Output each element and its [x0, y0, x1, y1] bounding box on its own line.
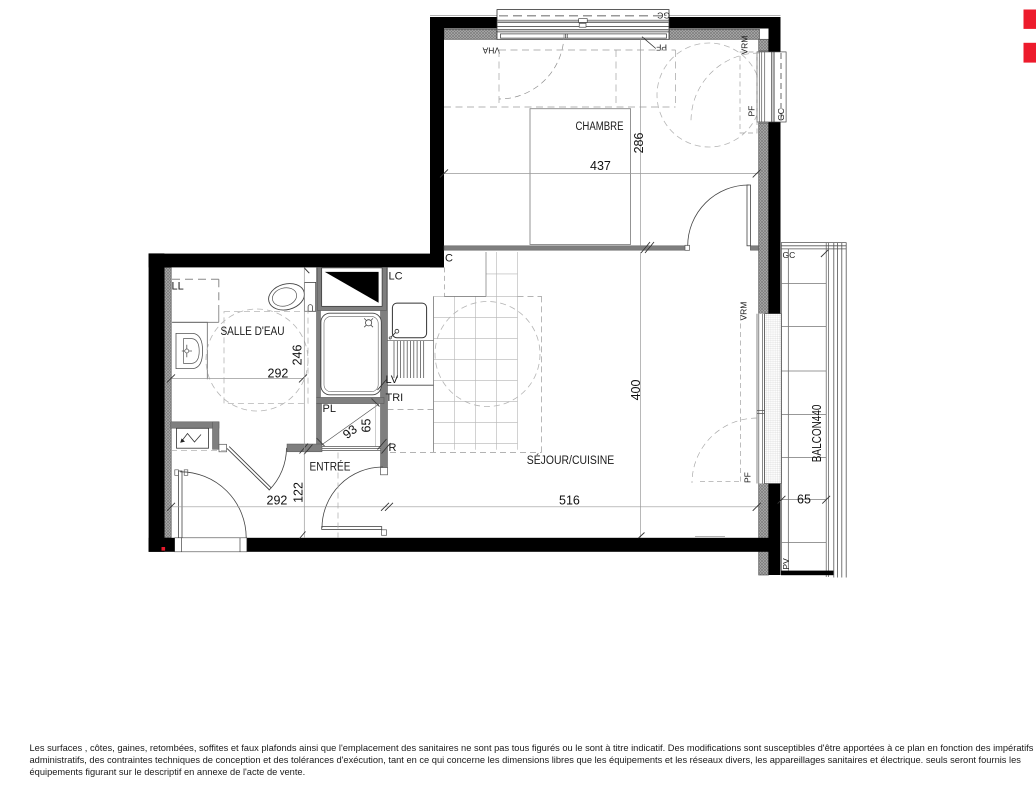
svg-text:PF: PF	[656, 43, 667, 53]
svg-text:SÉJOUR/CUISINE: SÉJOUR/CUISINE	[527, 453, 615, 467]
svg-text:65: 65	[360, 419, 374, 433]
svg-text:SALLE D'EAU: SALLE D'EAU	[220, 325, 284, 338]
svg-text:administratifs, des contrainte: administratifs, des contraintes techniqu…	[30, 755, 1022, 765]
svg-text:437: 437	[590, 159, 611, 173]
svg-text:292: 292	[267, 494, 288, 508]
svg-text:65: 65	[797, 493, 811, 507]
svg-text:LC: LC	[389, 271, 403, 283]
svg-text:PF: PF	[743, 472, 753, 483]
svg-text:LV: LV	[386, 374, 399, 386]
svg-text:122: 122	[292, 482, 306, 503]
svg-text:VHA: VHA	[482, 46, 500, 56]
svg-text:516: 516	[559, 493, 580, 507]
svg-text:équipements figurant sur le de: équipements figurant sur le descriptif e…	[30, 767, 306, 777]
svg-text:GC: GC	[783, 250, 796, 260]
svg-text:C: C	[445, 253, 453, 265]
svg-text:VRM: VRM	[740, 36, 750, 55]
svg-text:286: 286	[632, 133, 646, 154]
svg-text:ENTRÉE: ENTRÉE	[310, 460, 351, 474]
svg-text:PL: PL	[323, 403, 336, 415]
svg-text:GC: GC	[657, 11, 670, 21]
svg-text:TRI: TRI	[386, 392, 404, 404]
svg-text:LL: LL	[172, 281, 184, 293]
svg-text:BALCON440: BALCON440	[811, 405, 824, 463]
svg-text:VRM: VRM	[739, 302, 749, 321]
svg-text:GC: GC	[776, 108, 786, 121]
svg-text:PV: PV	[781, 558, 791, 570]
svg-text:292: 292	[268, 366, 289, 380]
svg-text:CHAMBRE: CHAMBRE	[576, 120, 624, 133]
svg-text:400: 400	[629, 380, 643, 401]
svg-text:Les surfaces , côtes, gaines,: Les surfaces , côtes, gaines, retombées,…	[30, 743, 1034, 753]
svg-text:PF: PF	[747, 106, 757, 117]
svg-text:246: 246	[290, 345, 304, 366]
